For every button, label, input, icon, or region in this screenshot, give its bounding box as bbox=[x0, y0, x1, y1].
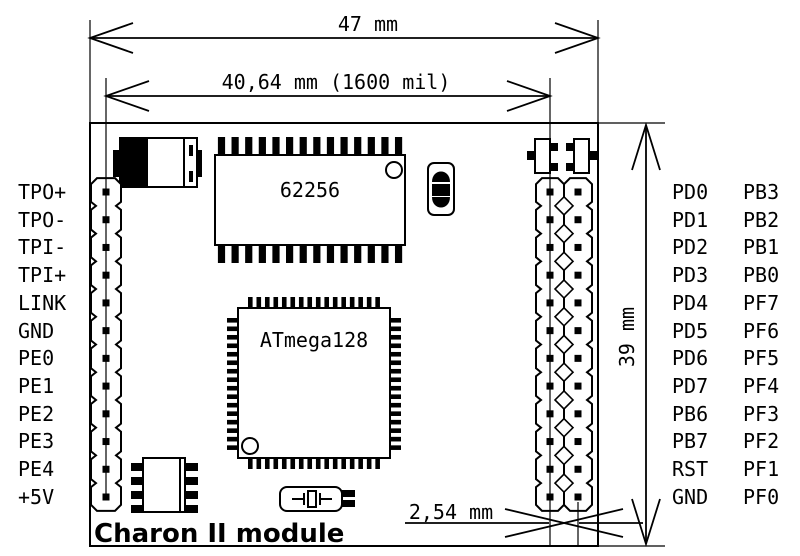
mcu-pin bbox=[227, 369, 238, 374]
mcu-pin bbox=[282, 297, 287, 308]
crystal-lead-bottom bbox=[342, 500, 355, 507]
mcu-pin bbox=[390, 411, 401, 416]
pin-label: PF7 bbox=[743, 291, 779, 315]
mcu-pin bbox=[390, 428, 401, 433]
mcu-pin bbox=[227, 377, 238, 382]
pin-label: LINK bbox=[18, 291, 66, 315]
mcu-pin bbox=[227, 394, 238, 399]
sram-label: 62256 bbox=[280, 178, 340, 202]
sram-pin bbox=[272, 137, 279, 155]
sot23-left-pin2 bbox=[550, 143, 558, 151]
header-pin-pad bbox=[575, 299, 582, 306]
sram-pin bbox=[218, 245, 225, 263]
sram-pin bbox=[395, 245, 402, 263]
pin-label: PB1 bbox=[743, 235, 779, 259]
mcu-pin bbox=[256, 458, 261, 469]
sram-pin bbox=[354, 245, 361, 263]
pin-label: PF0 bbox=[743, 485, 779, 509]
soic-pin bbox=[185, 491, 198, 499]
mcu-pin bbox=[227, 420, 238, 425]
mcu-pin bbox=[324, 458, 329, 469]
pin-label: PF5 bbox=[743, 346, 779, 370]
diode-component bbox=[428, 163, 454, 215]
sot23-right-pin3 bbox=[589, 151, 597, 160]
mcu-pin bbox=[256, 297, 261, 308]
sram-pin bbox=[381, 245, 388, 263]
pin-label: RST bbox=[672, 457, 708, 481]
pin-label: PF3 bbox=[743, 402, 779, 426]
sram-pin bbox=[327, 137, 334, 155]
pin-label: PF6 bbox=[743, 319, 779, 343]
sram-pin bbox=[232, 245, 239, 263]
soic-pin bbox=[185, 477, 198, 485]
sot23-right-pin2 bbox=[566, 163, 574, 171]
mcu-pin bbox=[390, 386, 401, 391]
mcu-pin bbox=[333, 297, 338, 308]
capacitor-tick-top bbox=[189, 145, 193, 156]
soic-pin bbox=[131, 477, 143, 485]
mcu-pin bbox=[290, 458, 295, 469]
header-pin-pad bbox=[575, 189, 582, 196]
pcb-dimension-drawing: 62256 ATmega128 bbox=[0, 0, 800, 556]
mcu-pin1-marker bbox=[242, 438, 258, 454]
mcu-pin bbox=[367, 297, 372, 308]
header-pin-pad bbox=[575, 327, 582, 334]
mcu-pin bbox=[390, 335, 401, 340]
pin-label: PB6 bbox=[672, 402, 708, 426]
sram-pin bbox=[286, 137, 293, 155]
sram-pin bbox=[245, 245, 252, 263]
sram-chip: 62256 bbox=[215, 137, 405, 263]
mcu-pin bbox=[273, 297, 278, 308]
right-outer-pin-labels: PB3 PB2 PB1 PB0 PF7 PF6 PF5 PF4 PF3 PF2 … bbox=[743, 180, 779, 509]
right-inner-pin-labels: PD0 PD1 PD2 PD3 PD4 PD5 PD6 PD7 PB6 PB7 … bbox=[672, 180, 708, 509]
mcu-pin bbox=[227, 352, 238, 357]
mcu-pin bbox=[341, 458, 346, 469]
mcu-pin bbox=[350, 458, 355, 469]
mcu-pin bbox=[341, 297, 346, 308]
sram-pin bbox=[368, 245, 375, 263]
sot23-left-pin3 bbox=[550, 163, 558, 171]
board-title: Charon II module bbox=[94, 519, 344, 549]
sram-pin bbox=[313, 137, 320, 155]
mcu-pin bbox=[350, 297, 355, 308]
mcu-pin bbox=[227, 318, 238, 323]
dim-pin-pitch-label: 2,54 mm bbox=[409, 500, 493, 524]
mcu-pin bbox=[248, 458, 253, 469]
sram-pin bbox=[340, 137, 347, 155]
mcu-pin bbox=[390, 377, 401, 382]
sram-pin bbox=[218, 137, 225, 155]
mcu-pin bbox=[390, 369, 401, 374]
mcu-pin bbox=[316, 458, 321, 469]
header-pin-pad bbox=[575, 272, 582, 279]
pin-label: PE2 bbox=[18, 402, 54, 426]
mcu-pin bbox=[227, 335, 238, 340]
pin-label: PE1 bbox=[18, 374, 54, 398]
pin-label: PF4 bbox=[743, 374, 779, 398]
mcu-pin bbox=[227, 360, 238, 365]
mcu-pin bbox=[375, 297, 380, 308]
pin-label: PD7 bbox=[672, 374, 708, 398]
dim-width-label: 47 mm bbox=[338, 12, 398, 36]
pin-label: PB3 bbox=[743, 180, 779, 204]
sram-pin bbox=[259, 137, 266, 155]
header-pin-pad bbox=[575, 410, 582, 417]
sram-pin bbox=[395, 137, 402, 155]
mcu-label: ATmega128 bbox=[260, 328, 368, 352]
mcu-pin bbox=[265, 297, 270, 308]
mcu-pin bbox=[227, 326, 238, 331]
sot23-left-body bbox=[535, 139, 550, 173]
pin-label: PE0 bbox=[18, 346, 54, 370]
diode-band bbox=[432, 184, 450, 196]
dim-header-span-label: 40,64 mm (1600 mil) bbox=[222, 70, 451, 94]
header-pin-pad bbox=[575, 383, 582, 390]
mcu-pin bbox=[390, 318, 401, 323]
header-pin-pad bbox=[575, 244, 582, 251]
mcu-pin bbox=[375, 458, 380, 469]
mcu-pin bbox=[390, 420, 401, 425]
mcu-pin bbox=[227, 386, 238, 391]
sram-pin bbox=[313, 245, 320, 263]
mcu-pin bbox=[390, 403, 401, 408]
sram-pin bbox=[327, 245, 334, 263]
right-connector bbox=[536, 178, 592, 511]
mcu-pin bbox=[390, 437, 401, 442]
mcu-pin bbox=[227, 403, 238, 408]
pin-label: GND bbox=[18, 319, 54, 343]
sram-pin bbox=[354, 137, 361, 155]
soic-body bbox=[143, 458, 185, 512]
mcu-pin bbox=[227, 343, 238, 348]
mcu-pin bbox=[390, 343, 401, 348]
mcu-pin bbox=[265, 458, 270, 469]
mcu-pin bbox=[227, 428, 238, 433]
mcu-pin bbox=[227, 445, 238, 450]
mcu-pin bbox=[358, 458, 363, 469]
mcu-pin bbox=[333, 458, 338, 469]
mcu-pin bbox=[299, 458, 304, 469]
pin-label: PF1 bbox=[743, 457, 779, 481]
sram-pin bbox=[300, 245, 307, 263]
soic-pin bbox=[131, 463, 143, 471]
sot23-left-pin1 bbox=[527, 151, 535, 160]
mcu-pin bbox=[307, 458, 312, 469]
sram-pin bbox=[232, 137, 239, 155]
mcu-pin bbox=[273, 458, 278, 469]
pin-label: PD6 bbox=[672, 346, 708, 370]
pin-label: PD2 bbox=[672, 235, 708, 259]
header-pin-pad bbox=[575, 216, 582, 223]
drawing-canvas: 62256 ATmega128 bbox=[0, 0, 800, 556]
sram-pin bbox=[245, 137, 252, 155]
mcu-pin bbox=[299, 297, 304, 308]
mcu-pin bbox=[282, 458, 287, 469]
header-pin-pad bbox=[575, 355, 582, 362]
mcu-pin bbox=[390, 445, 401, 450]
pin-label: TPI- bbox=[18, 235, 66, 259]
pin-label: PD1 bbox=[672, 208, 708, 232]
dim-height-label: 39 mm bbox=[615, 307, 639, 367]
mcu-pin bbox=[307, 297, 312, 308]
mcu-pin bbox=[390, 326, 401, 331]
mcu-pin bbox=[316, 297, 321, 308]
sram-pin1-marker bbox=[386, 162, 402, 178]
sram-pin bbox=[286, 245, 293, 263]
mcu-pin bbox=[390, 360, 401, 365]
pin-label: +5V bbox=[18, 485, 54, 509]
electrolytic-capacitor bbox=[113, 138, 202, 187]
mcu-pin bbox=[290, 297, 295, 308]
sram-pin bbox=[368, 137, 375, 155]
mcu-pin bbox=[390, 352, 401, 357]
pin-label: PB0 bbox=[743, 263, 779, 287]
sram-pin bbox=[381, 137, 388, 155]
sot23-right-pin1 bbox=[566, 143, 574, 151]
pin-label: TPO+ bbox=[18, 180, 66, 204]
header-pin-pad bbox=[575, 438, 582, 445]
pin-label: PE4 bbox=[18, 457, 54, 481]
sot23-right-body bbox=[574, 139, 589, 173]
pin-label: TPO- bbox=[18, 208, 66, 232]
mcu-pin bbox=[390, 394, 401, 399]
sram-pin bbox=[259, 245, 266, 263]
dimension-height: 39 mm bbox=[598, 123, 665, 546]
mcu-chip: ATmega128 bbox=[227, 297, 401, 469]
pin-label: PF2 bbox=[743, 429, 779, 453]
pin-label: PD0 bbox=[672, 180, 708, 204]
mcu-pin bbox=[358, 297, 363, 308]
soic-pin bbox=[131, 505, 143, 513]
mcu-pin bbox=[248, 297, 253, 308]
mcu-pin bbox=[324, 297, 329, 308]
capacitor-tick-bottom bbox=[189, 171, 193, 182]
header-pin-pad bbox=[575, 466, 582, 473]
mcu-pin bbox=[227, 411, 238, 416]
pin-label: PB2 bbox=[743, 208, 779, 232]
crystal-lead-top bbox=[342, 490, 355, 497]
pin-label: TPI+ bbox=[18, 263, 66, 287]
capacitor-polarity-band bbox=[120, 138, 148, 187]
soic-pin bbox=[185, 505, 198, 513]
pin-label: PD5 bbox=[672, 319, 708, 343]
mcu-pin bbox=[367, 458, 372, 469]
soic-pin bbox=[131, 491, 143, 499]
sram-pin bbox=[300, 137, 307, 155]
sram-pin bbox=[340, 245, 347, 263]
pin-label: PD4 bbox=[672, 291, 708, 315]
pin-label: GND bbox=[672, 485, 708, 509]
pin-label: PE3 bbox=[18, 429, 54, 453]
pin-label: PD3 bbox=[672, 263, 708, 287]
sram-pin bbox=[272, 245, 279, 263]
soic-pin bbox=[185, 463, 198, 471]
mcu-pin bbox=[227, 437, 238, 442]
left-pin-labels: TPO+ TPO- TPI- TPI+ LINK GND PE0 PE1 PE2… bbox=[18, 180, 66, 509]
header-pin-pad bbox=[575, 493, 582, 500]
pin-label: PB7 bbox=[672, 429, 708, 453]
